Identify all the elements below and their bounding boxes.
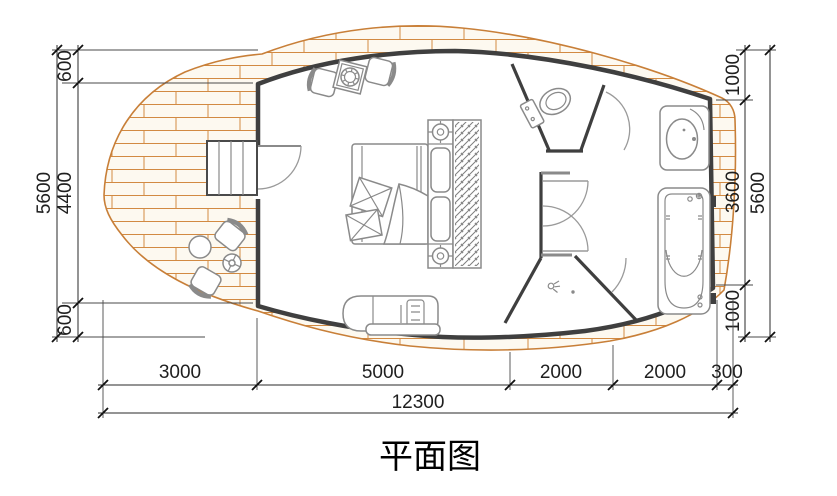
sink-drain: [683, 129, 686, 132]
dim-label: 2000: [644, 362, 686, 383]
dim-label: 5000: [362, 362, 404, 383]
dim-label: 600: [55, 50, 76, 82]
deck-round-table: [189, 236, 211, 258]
dim-label: 300: [711, 362, 743, 383]
dim-label: 5600: [34, 172, 55, 214]
dim-label: 12300: [392, 392, 445, 413]
dim-label: 4400: [55, 172, 76, 214]
floor-plan-canvas: 600 4400 600 5600 1000 3600 1000 5600 30…: [0, 0, 837, 496]
sink-faucet: [692, 137, 696, 141]
stairs-outline: [207, 141, 257, 195]
dimension-right: 1000 3600 1000 5600: [716, 45, 776, 342]
daybed: [343, 296, 440, 335]
cushion-2: [346, 209, 382, 240]
pillow-2: [431, 197, 450, 241]
dim-label: 600: [55, 304, 76, 336]
dim-label: 1000: [723, 54, 744, 96]
tub-faucet: [696, 193, 702, 199]
double-bed: [346, 144, 428, 244]
headboard-unit: [428, 120, 481, 268]
dim-label: 1000: [723, 290, 744, 332]
vanity-sink: [660, 106, 709, 170]
plan-title: 平面图: [379, 438, 481, 476]
daybed-base: [366, 324, 440, 335]
entry-stairs: [207, 141, 257, 195]
dim-label: 3600: [723, 171, 744, 213]
side-table: [333, 60, 367, 94]
wardrobe-clothes-hatch: [455, 122, 479, 266]
dim-label: 3000: [159, 362, 201, 383]
pillow-1: [431, 148, 450, 192]
bathtub: [658, 188, 710, 314]
dim-label: 2000: [540, 362, 582, 383]
floor-plan-page: 600 4400 600 5600 1000 3600 1000 5600 30…: [0, 0, 837, 496]
floor-drain: [571, 290, 574, 293]
dim-label: 5600: [748, 172, 769, 214]
